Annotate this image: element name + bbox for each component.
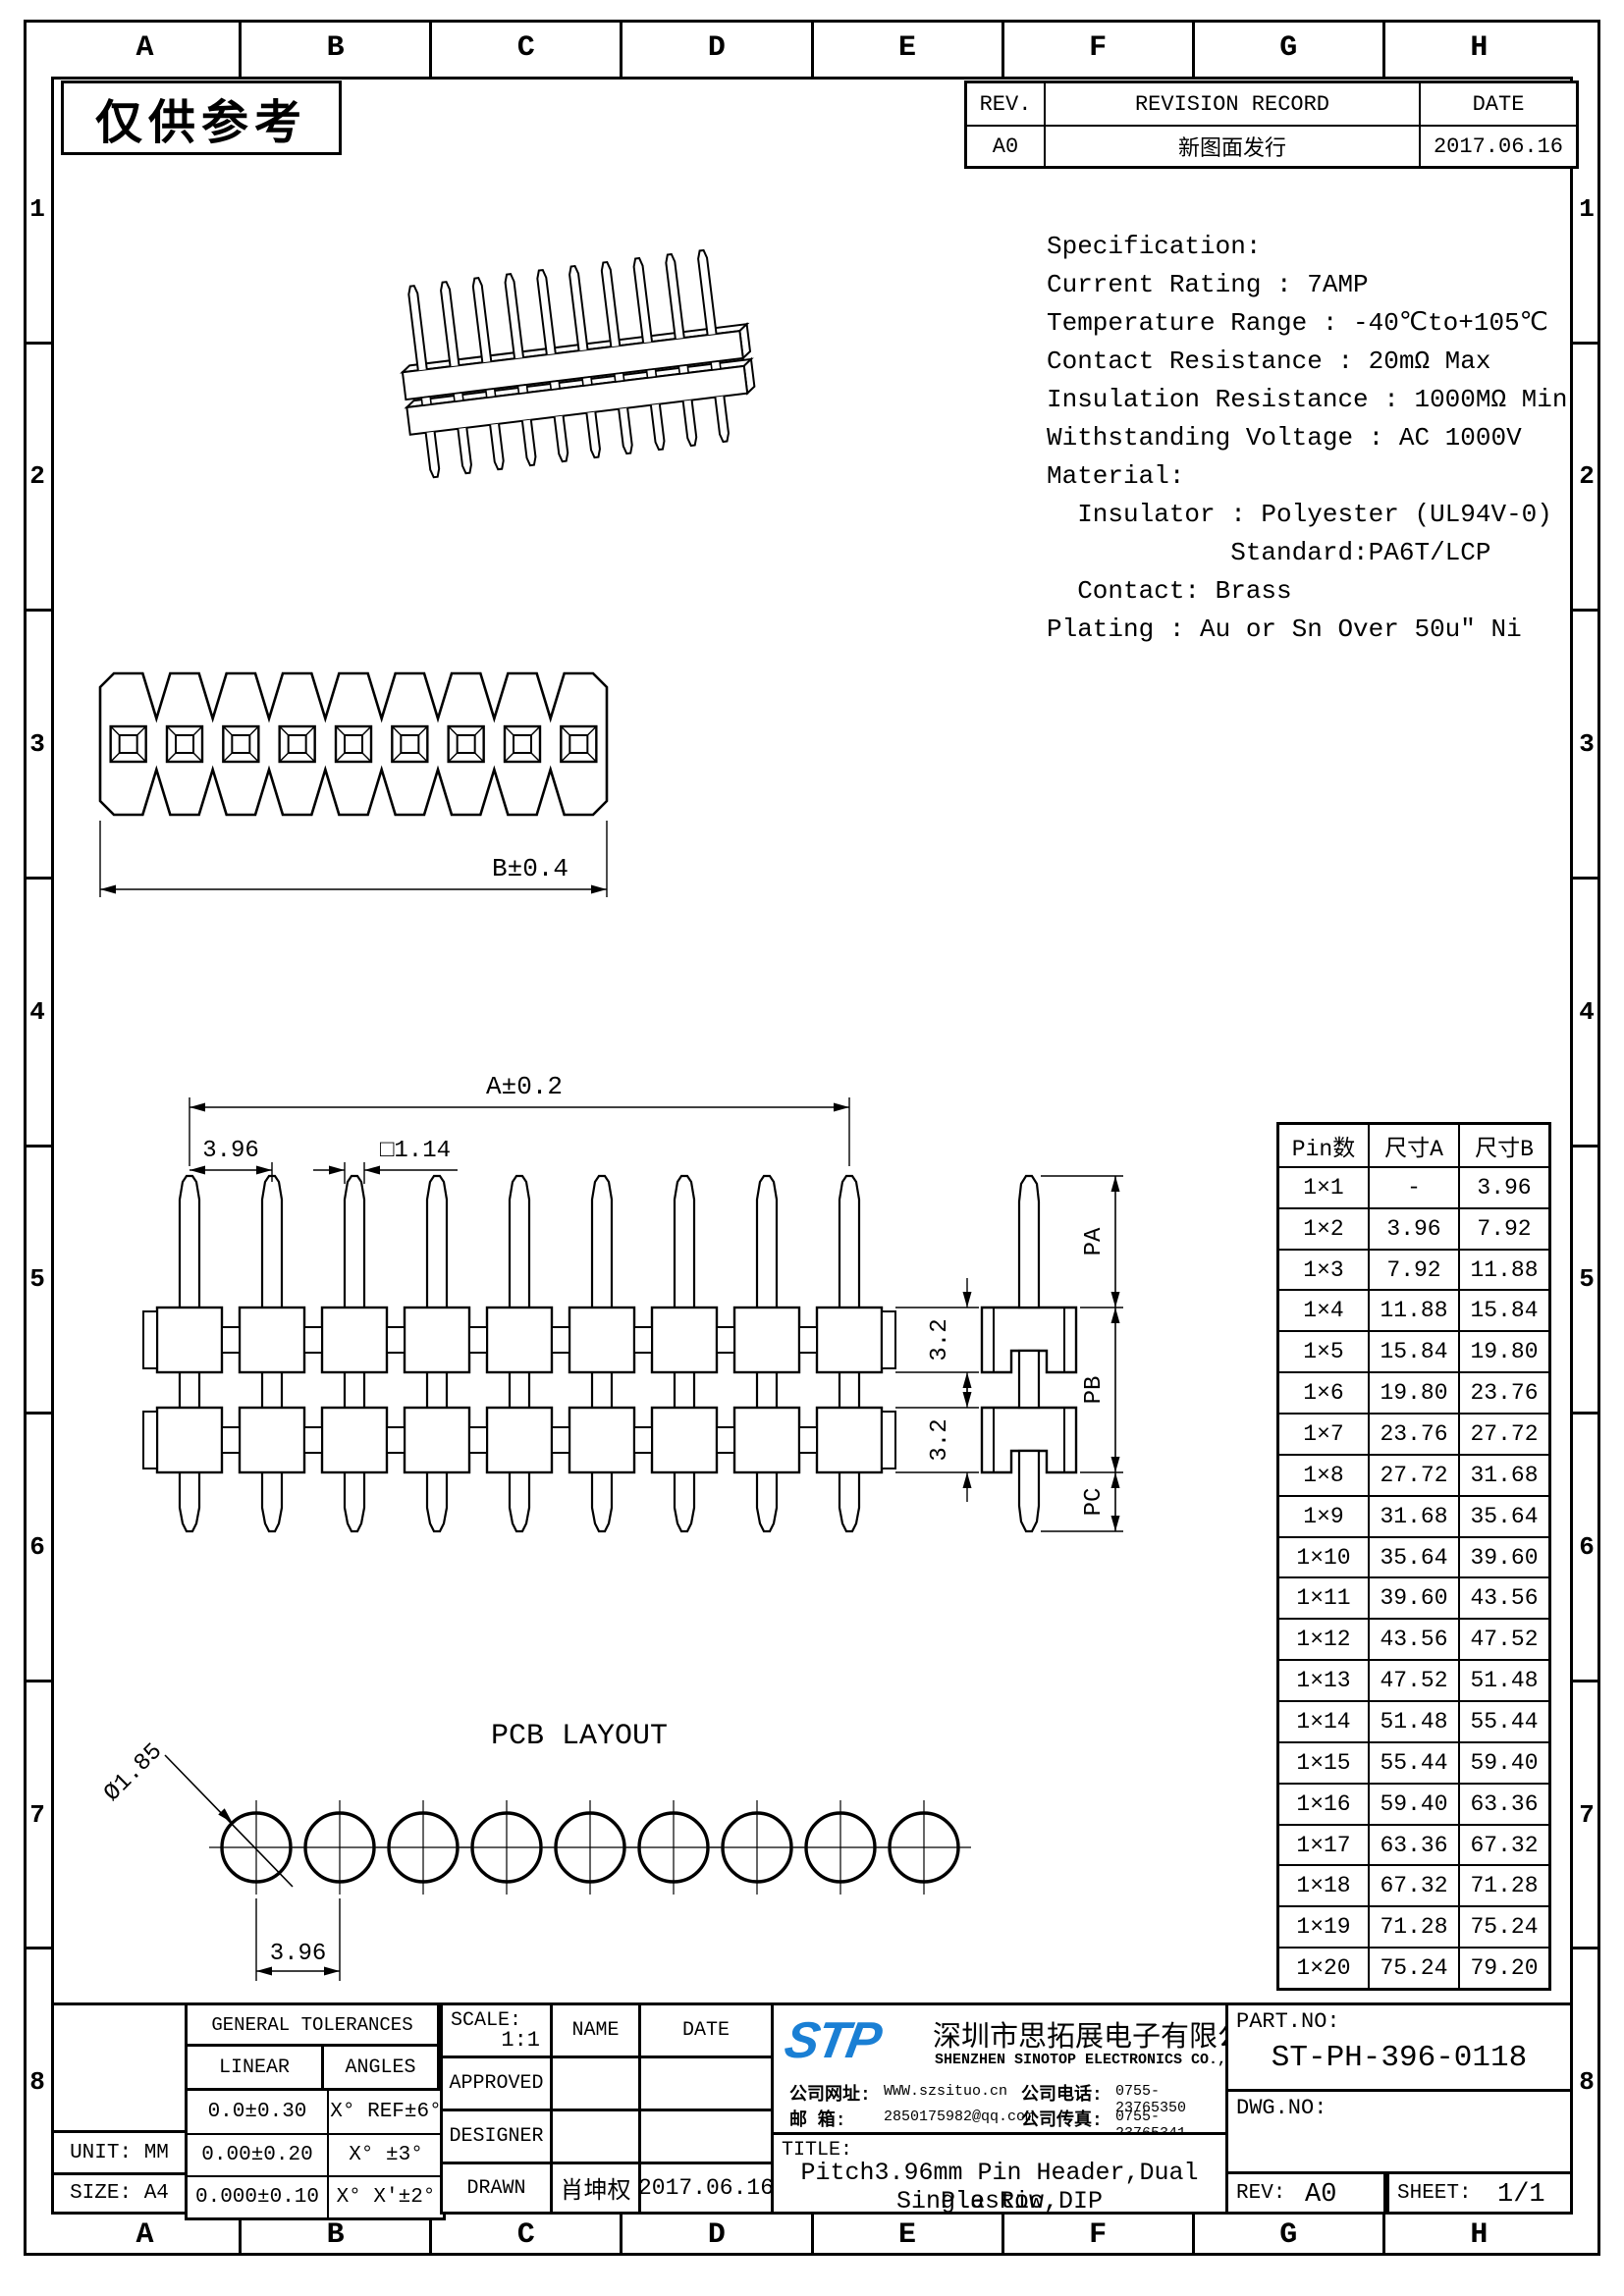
row-label-8: 8 bbox=[24, 1949, 51, 2215]
tolerances-header: GENERAL TOLERANCES bbox=[185, 2002, 440, 2047]
table-cell: 1×10 bbox=[1279, 1536, 1368, 1577]
table-cell: 59.40 bbox=[1458, 1741, 1548, 1783]
drawn-date: 2017.06.16 bbox=[638, 2162, 774, 2215]
table-cell: 63.36 bbox=[1458, 1783, 1548, 1824]
table-cell: 1×14 bbox=[1279, 1700, 1368, 1741]
table-cell: 31.68 bbox=[1458, 1454, 1548, 1495]
spec-line: Plating : Au or Sn Over 50u″ Ni bbox=[1047, 611, 1577, 649]
row-label-2: 2 bbox=[1573, 345, 1600, 613]
row-label-5: 5 bbox=[24, 1148, 51, 1415]
table-cell: 47.52 bbox=[1368, 1659, 1458, 1700]
table-cell: 0.00±0.20 bbox=[188, 2133, 327, 2175]
title-cell: TITLE: Pitch3.96mm Pin Header,Dual Plast… bbox=[771, 2132, 1228, 2215]
specification-block: Specification:Current Rating : 7AMPTempe… bbox=[1047, 228, 1577, 649]
table-cell: 1×16 bbox=[1279, 1783, 1368, 1824]
column-labels-bottom: ABCDEFGH bbox=[51, 2215, 1573, 2256]
designer-name-cell bbox=[550, 2109, 641, 2164]
company-cell: STP 深圳市思拓展电子有限公司 SHENZHEN SINOTOP ELECTR… bbox=[771, 2002, 1228, 2135]
table-cell: 0.0±0.30 bbox=[188, 2091, 327, 2133]
table-cell: 1×5 bbox=[1279, 1330, 1368, 1371]
table-cell: 1×9 bbox=[1279, 1495, 1368, 1536]
table-cell: 2017.06.16 bbox=[1419, 125, 1576, 166]
dwg-no-label: DWG.NO: bbox=[1236, 2096, 1326, 2120]
drawn-name: 肖坤权 bbox=[550, 2162, 641, 2215]
pin-dimension-table: Pin数尺寸A尺寸B1×1-3.961×23.967.921×37.9211.8… bbox=[1276, 1122, 1551, 1991]
tolerances-table: 0.0±0.30X° REF±6°0.00±0.20X° ±3°0.000±0.… bbox=[185, 2088, 446, 2220]
col-label-G: G bbox=[1195, 2215, 1385, 2256]
table-cell: 1×13 bbox=[1279, 1659, 1368, 1700]
spec-line: Withstanding Voltage : AC 1000V bbox=[1047, 419, 1577, 457]
table-cell: 1×11 bbox=[1279, 1576, 1368, 1618]
col-label-E: E bbox=[814, 20, 1004, 77]
table-cell: REVISION RECORD bbox=[1044, 83, 1419, 125]
table-cell: 1×2 bbox=[1279, 1207, 1368, 1249]
table-cell: 7.92 bbox=[1458, 1207, 1548, 1249]
table-cell: 3.96 bbox=[1458, 1166, 1548, 1207]
row-label-3: 3 bbox=[24, 612, 51, 880]
approved-label: APPROVED bbox=[440, 2056, 553, 2111]
col-label-H: H bbox=[1385, 2215, 1573, 2256]
table-cell: 23.76 bbox=[1458, 1371, 1548, 1413]
col-label-C: C bbox=[432, 20, 623, 77]
table-cell: X° ±3° bbox=[327, 2133, 443, 2175]
company-logo: STP bbox=[781, 2011, 885, 2070]
table-cell: 1×12 bbox=[1279, 1618, 1368, 1659]
spec-line: Material: bbox=[1047, 457, 1577, 496]
table-cell: 19.80 bbox=[1368, 1371, 1458, 1413]
spec-line: Insulator : Polyester (UL94V-0) bbox=[1047, 496, 1577, 534]
dwg-no-cell: DWG.NO: bbox=[1225, 2089, 1573, 2174]
row-label-5: 5 bbox=[1573, 1148, 1600, 1415]
table-cell: 11.88 bbox=[1458, 1249, 1548, 1290]
company-name-en: SHENZHEN SINOTOP ELECTRONICS CO.,LTD bbox=[935, 2052, 1253, 2068]
unit-cell: UNIT: MM bbox=[51, 2130, 188, 2175]
table-cell: 1×4 bbox=[1279, 1289, 1368, 1330]
table-cell: 0.000±0.10 bbox=[188, 2175, 327, 2217]
table-cell: 63.36 bbox=[1368, 1824, 1458, 1865]
col-label-F: F bbox=[1004, 20, 1195, 77]
row-labels-left: 12345678 bbox=[24, 77, 51, 2215]
scale-cell: SCALE: 1:1 bbox=[440, 2002, 553, 2058]
table-cell: 新图面发行 bbox=[1044, 125, 1419, 166]
table-cell: 59.40 bbox=[1368, 1783, 1458, 1824]
table-cell: 67.32 bbox=[1368, 1864, 1458, 1905]
sheet-value: 1/1 bbox=[1497, 2180, 1545, 2210]
table-cell: 1×7 bbox=[1279, 1413, 1368, 1454]
projection-symbol-cell bbox=[51, 2002, 188, 2133]
spec-line: Contact Resistance : 20mΩ Max bbox=[1047, 343, 1577, 381]
spec-line: Current Rating : 7AMP bbox=[1047, 266, 1577, 304]
col-label-C: C bbox=[432, 2215, 623, 2256]
row-label-3: 3 bbox=[1573, 612, 1600, 880]
table-cell: 43.56 bbox=[1458, 1576, 1548, 1618]
approved-name-cell bbox=[550, 2056, 641, 2111]
approved-date-cell bbox=[638, 2056, 774, 2111]
table-cell: A0 bbox=[967, 125, 1044, 166]
fax-label: 公司传真: bbox=[1021, 2106, 1103, 2131]
table-cell: 15.84 bbox=[1458, 1289, 1548, 1330]
table-cell: 1×18 bbox=[1279, 1864, 1368, 1905]
table-cell: 51.48 bbox=[1368, 1700, 1458, 1741]
table-cell: 27.72 bbox=[1368, 1454, 1458, 1495]
table-cell: 31.68 bbox=[1368, 1495, 1458, 1536]
row-label-8: 8 bbox=[1573, 1949, 1600, 2215]
table-cell: 1×15 bbox=[1279, 1741, 1368, 1783]
table-cell: 1×20 bbox=[1279, 1947, 1368, 1988]
linear-header: LINEAR bbox=[185, 2044, 324, 2091]
row-label-4: 4 bbox=[24, 880, 51, 1148]
table-cell: DATE bbox=[1419, 83, 1576, 125]
spec-line: Contact: Brass bbox=[1047, 572, 1577, 611]
part-no-value: ST-PH-396-0118 bbox=[1228, 2041, 1570, 2075]
designer-date-cell bbox=[638, 2109, 774, 2164]
col-label-F: F bbox=[1004, 2215, 1195, 2256]
row-label-4: 4 bbox=[1573, 880, 1600, 1148]
email-label: 邮 箱: bbox=[789, 2106, 846, 2131]
spec-line: Specification: bbox=[1047, 228, 1577, 266]
table-cell: 79.20 bbox=[1458, 1947, 1548, 1988]
table-cell: 55.44 bbox=[1368, 1741, 1458, 1783]
drawing-sheet: B±0.4A±0.23.96□1.143.23.2PAPBPCPCB LAYOU… bbox=[0, 0, 1624, 2296]
rev-label: REV: bbox=[1236, 2182, 1285, 2205]
column-labels-top: ABCDEFGH bbox=[51, 20, 1573, 77]
row-label-6: 6 bbox=[24, 1415, 51, 1682]
watermark: 仅供参考 bbox=[61, 80, 342, 155]
table-cell: 7.92 bbox=[1368, 1249, 1458, 1290]
drawn-label: DRAWN bbox=[440, 2162, 553, 2215]
website-label: 公司网址: bbox=[789, 2080, 871, 2106]
table-cell: 75.24 bbox=[1458, 1905, 1548, 1947]
table-cell: 43.56 bbox=[1368, 1618, 1458, 1659]
angles-header: ANGLES bbox=[321, 2044, 440, 2091]
table-cell: 23.76 bbox=[1368, 1413, 1458, 1454]
table-cell: 47.52 bbox=[1458, 1618, 1548, 1659]
col-label-E: E bbox=[814, 2215, 1004, 2256]
table-cell: 35.64 bbox=[1368, 1536, 1458, 1577]
row-labels-right: 12345678 bbox=[1573, 77, 1600, 2215]
row-label-2: 2 bbox=[24, 345, 51, 613]
col-label-D: D bbox=[623, 2215, 813, 2256]
table-cell: 71.28 bbox=[1458, 1864, 1548, 1905]
table-cell: 27.72 bbox=[1458, 1413, 1548, 1454]
col-label-B: B bbox=[242, 2215, 432, 2256]
date-header: DATE bbox=[638, 2002, 774, 2058]
email-value: 2850175982@qq.com bbox=[884, 2109, 1034, 2125]
table-cell: 11.88 bbox=[1368, 1289, 1458, 1330]
table-cell: X° X'±2° bbox=[327, 2175, 443, 2217]
col-label-B: B bbox=[242, 20, 432, 77]
col-label-A: A bbox=[51, 2215, 242, 2256]
scale-value: 1:1 bbox=[501, 2028, 540, 2053]
size-cell: SIZE: A4 bbox=[51, 2172, 188, 2215]
table-cell: X° REF±6° bbox=[327, 2091, 443, 2133]
website-value: WWW.szsituo.cn bbox=[884, 2083, 1007, 2100]
table-cell: 1×3 bbox=[1279, 1249, 1368, 1290]
rev-cell: REV: A0 bbox=[1225, 2171, 1386, 2215]
table-cell: 51.48 bbox=[1458, 1659, 1548, 1700]
col-label-A: A bbox=[51, 20, 242, 77]
spec-line: Insulation Resistance : 1000MΩ Min bbox=[1047, 381, 1577, 419]
company-name-cn: 深圳市思拓展电子有限公司 bbox=[933, 2013, 1274, 2055]
col-label-D: D bbox=[623, 20, 813, 77]
table-cell: 75.24 bbox=[1368, 1947, 1458, 1988]
table-cell: 1×8 bbox=[1279, 1454, 1368, 1495]
designer-label: DESIGNER bbox=[440, 2109, 553, 2164]
table-cell: 尺寸A bbox=[1368, 1125, 1458, 1166]
spec-line: Standard:PA6T/LCP bbox=[1047, 534, 1577, 572]
table-cell: Pin数 bbox=[1279, 1125, 1368, 1166]
sheet-cell: SHEET: 1/1 bbox=[1386, 2171, 1573, 2215]
table-cell: 67.32 bbox=[1458, 1824, 1548, 1865]
row-label-7: 7 bbox=[24, 1682, 51, 1950]
table-cell: 尺寸B bbox=[1458, 1125, 1548, 1166]
rev-value: A0 bbox=[1305, 2180, 1336, 2210]
table-cell: 1×1 bbox=[1279, 1166, 1368, 1207]
table-cell: 1×6 bbox=[1279, 1371, 1368, 1413]
row-label-1: 1 bbox=[24, 77, 51, 345]
row-label-6: 6 bbox=[1573, 1415, 1600, 1682]
table-cell: 15.84 bbox=[1368, 1330, 1458, 1371]
table-cell: 39.60 bbox=[1368, 1576, 1458, 1618]
table-cell: 71.28 bbox=[1368, 1905, 1458, 1947]
sheet-label: SHEET: bbox=[1397, 2182, 1472, 2205]
col-label-H: H bbox=[1385, 20, 1573, 77]
table-cell: REV. bbox=[967, 83, 1044, 125]
title-line2: Single Row,DIP bbox=[774, 2187, 1225, 2216]
revision-table: REV.REVISION RECORDDATEA0新图面发行2017.06.16 bbox=[964, 80, 1579, 169]
name-header: NAME bbox=[550, 2002, 641, 2058]
col-label-G: G bbox=[1195, 20, 1385, 77]
table-cell: 39.60 bbox=[1458, 1536, 1548, 1577]
part-no-cell: PART.NO: ST-PH-396-0118 bbox=[1225, 2002, 1573, 2092]
table-cell: 55.44 bbox=[1458, 1700, 1548, 1741]
table-cell: - bbox=[1368, 1166, 1458, 1207]
table-cell: 3.96 bbox=[1368, 1207, 1458, 1249]
table-cell: 1×19 bbox=[1279, 1905, 1368, 1947]
table-cell: 19.80 bbox=[1458, 1330, 1548, 1371]
phone-label: 公司电话: bbox=[1021, 2080, 1103, 2106]
table-cell: 1×17 bbox=[1279, 1824, 1368, 1865]
part-no-label: PART.NO: bbox=[1236, 2009, 1340, 2034]
spec-line: Temperature Range : -40℃to+105℃ bbox=[1047, 304, 1577, 343]
row-label-7: 7 bbox=[1573, 1682, 1600, 1950]
table-cell: 35.64 bbox=[1458, 1495, 1548, 1536]
